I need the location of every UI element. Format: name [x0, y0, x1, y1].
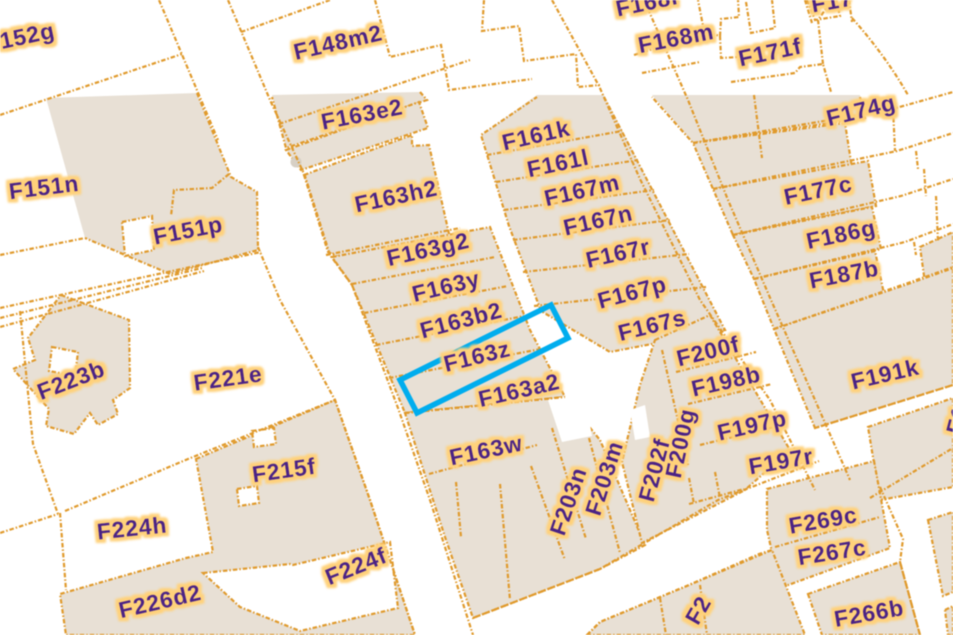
svg-text:F171f: F171f: [736, 33, 804, 72]
svg-text:F168m: F168m: [636, 18, 716, 58]
svg-text:F221e: F221e: [192, 360, 264, 395]
svg-text:F17: F17: [809, 0, 855, 17]
svg-text:F148m2: F148m2: [291, 19, 385, 65]
svg-text:F152g: F152g: [0, 17, 57, 57]
svg-text:F224h: F224h: [96, 511, 169, 544]
svg-text:F151n: F151n: [7, 170, 80, 204]
svg-text:F168r: F168r: [613, 0, 682, 22]
